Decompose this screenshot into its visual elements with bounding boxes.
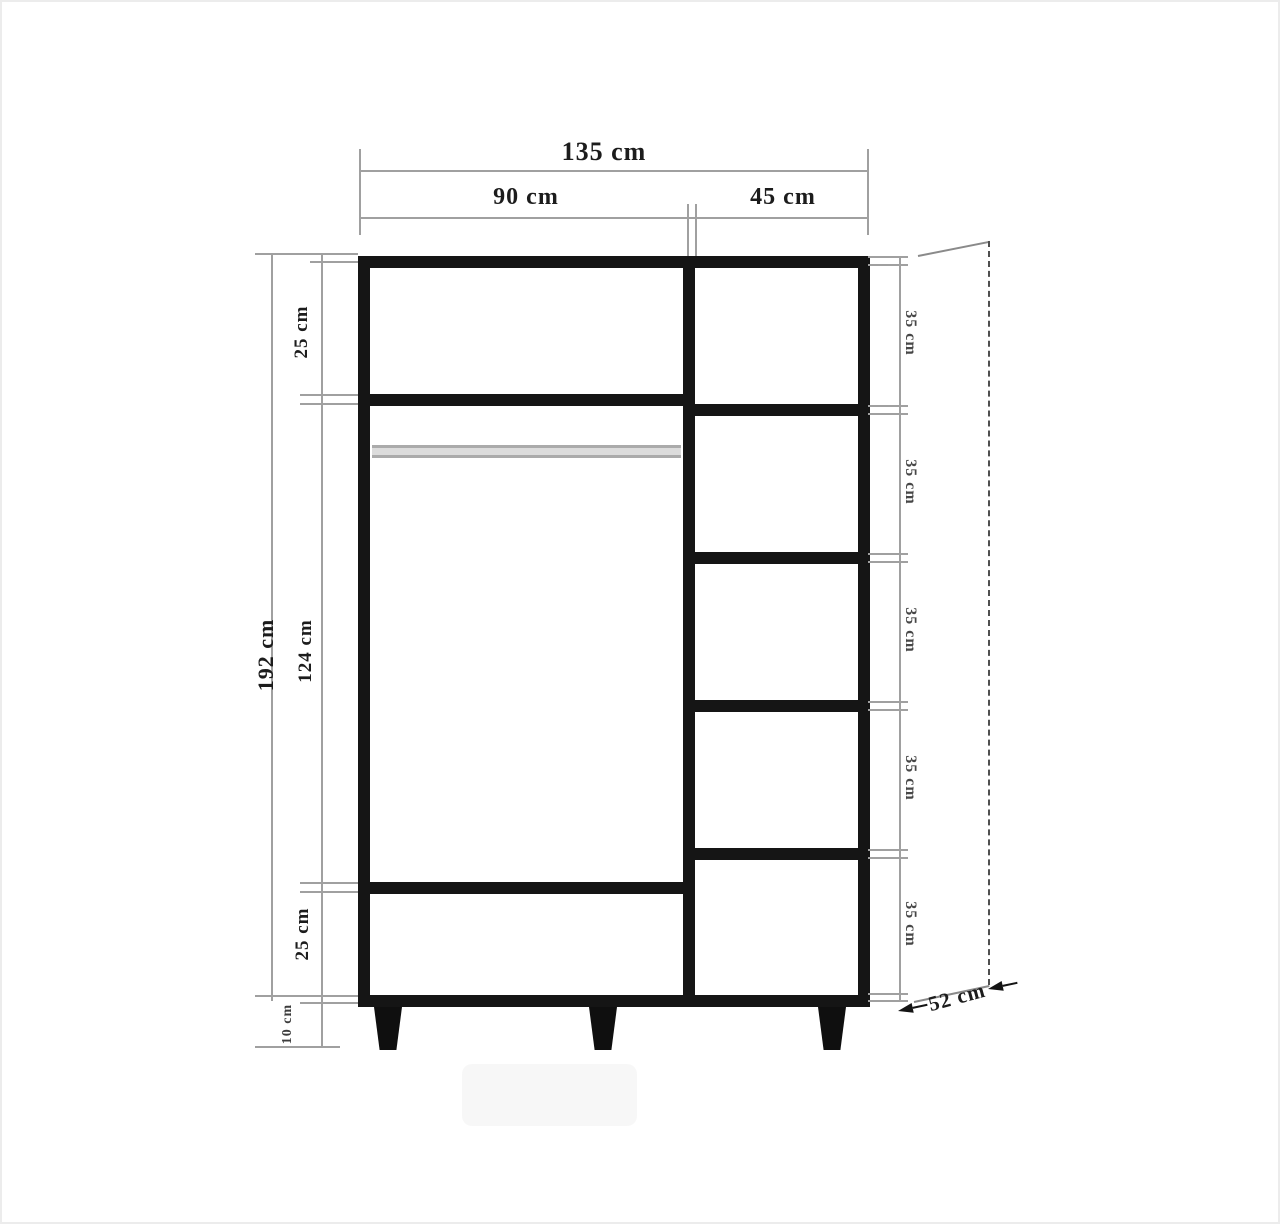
ext-tick-top-left [359,149,361,235]
dim-label-shelf-4: 35 cm [901,723,919,833]
ext-tick-left-shelf1-b [300,403,358,405]
dim-label-shelf-2: 35 cm [901,427,919,537]
cabinet-bottom-panel [358,995,870,1007]
arrowhead-icon [897,1003,914,1016]
ext-tick-left-top-a [255,253,358,255]
ext-tick-split-a [687,204,689,256]
ext-tick-r1a [868,405,908,407]
dim-label-leg-height: 10 cm [280,964,296,1084]
dim-label-left-middle: 124 cm [295,591,317,711]
ext-tick-r4a [868,849,908,851]
leg-left [374,1007,402,1050]
dim-line-split-width [360,217,868,219]
ext-tick-r4b [868,857,908,859]
dim-label-total-height: 192 cm [253,595,279,715]
watermark-smudge [462,1064,637,1126]
ext-tick-r0b [868,264,908,266]
dim-label-shelf-1: 35 cm [901,278,919,388]
cabinet-center-divider [683,256,695,1007]
dim-label-left-top: 25 cm [291,272,313,392]
ext-tick-r3b [868,709,908,711]
dim-line-total-width [360,170,868,172]
left-bottom-shelf [370,882,683,894]
ext-tick-r2b [868,561,908,563]
dim-label-left-section-width: 90 cm [466,184,586,211]
ext-tick-left-bottom-a [255,995,358,997]
depth-dashed-line [988,241,990,985]
left-top-shelf [370,394,683,406]
right-shelf-2 [695,552,858,564]
right-shelf-3 [695,700,858,712]
ext-tick-split-b [695,204,697,256]
ext-tick-left-top-b [310,261,358,263]
ext-tick-r5a [868,993,908,995]
ext-tick-r2a [868,553,908,555]
dim-label-total-width: 135 cm [544,137,664,167]
ext-tick-r3a [868,701,908,703]
dim-label-shelf-5: 35 cm [901,869,919,979]
dim-label-right-section-width: 45 cm [723,184,843,211]
depth-projection-top [918,241,990,257]
right-shelf-4 [695,848,858,860]
dim-line-left-sections [321,253,323,1048]
leg-right [818,1007,846,1050]
wardrobe-dimension-diagram: 135 cm 90 cm 45 cm 192 cm 124 cm 25 cm 2… [0,0,1280,1224]
ext-tick-top-right [867,149,869,235]
cabinet-right-panel [858,256,870,1007]
leg-center [589,1007,617,1050]
dim-label-shelf-3: 35 cm [901,575,919,685]
ext-tick-left-bottom-b [300,1002,358,1004]
arrow-tail [1002,982,1017,987]
hanging-rail [372,445,681,458]
cabinet-left-panel [358,256,370,1007]
right-shelf-1 [695,404,858,416]
ext-tick-legs-bottom [255,1046,340,1048]
dim-label-depth: 52 cm [915,975,999,1020]
ext-tick-r1b [868,413,908,415]
ext-tick-r0a [868,256,908,258]
ext-tick-left-shelf1-a [300,394,358,396]
cabinet-top-panel [358,256,870,268]
image-border [0,0,1280,1224]
ext-tick-r5b [868,1000,908,1002]
